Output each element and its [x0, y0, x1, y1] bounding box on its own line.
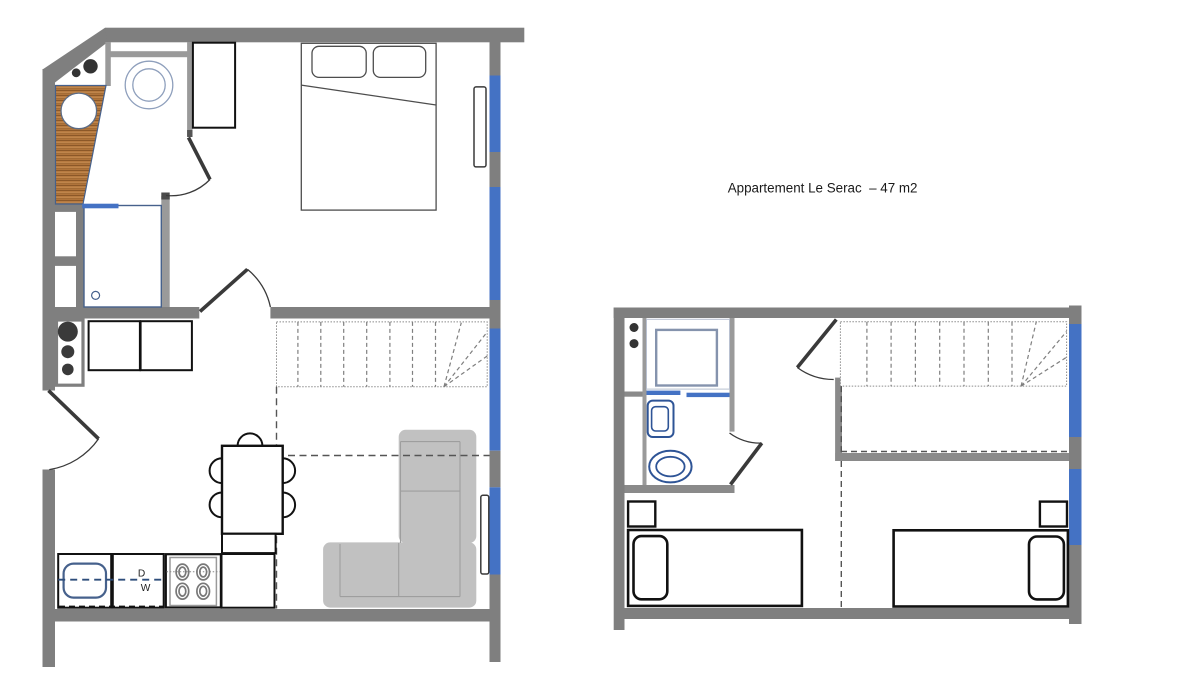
- svg-text:D: D: [138, 568, 145, 579]
- svg-text:Appartement Le Serac – 47 m2: Appartement Le Serac – 47 m2: [728, 180, 918, 195]
- svg-text:W: W: [141, 583, 151, 594]
